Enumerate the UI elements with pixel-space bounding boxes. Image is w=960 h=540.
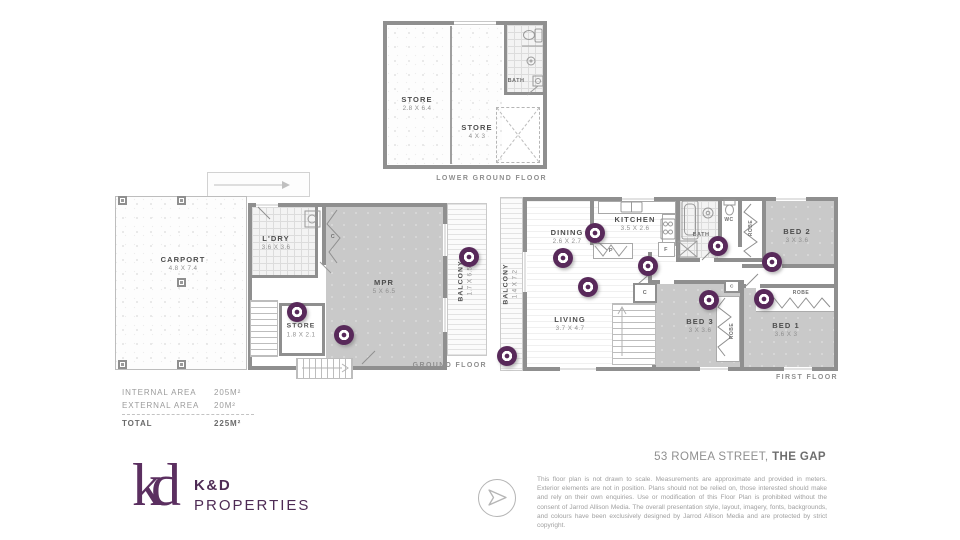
ff-stairs: [612, 303, 656, 365]
gf-carport-label: CARPORT4.8 X 7.4: [161, 255, 206, 273]
ff-bed3-robe: [716, 296, 740, 362]
internal-area-label: INTERNAL AREA: [122, 388, 214, 397]
tour-marker[interactable]: [754, 289, 774, 309]
ff-bath-label: BATH: [693, 232, 710, 238]
ff-bed3-robe-label: ROBE: [729, 323, 735, 339]
gf-stairs: [250, 300, 278, 357]
floorplan-page: STORE2.8 X 6.4 STORE4 X 3 BATH LOWER GRO…: [0, 0, 960, 540]
ff-bed1-robe-label: ROBE: [793, 290, 809, 296]
carport-post: [118, 360, 127, 369]
ff-bed3-label: BED 33 X 3.6: [686, 317, 714, 335]
tour-marker[interactable]: [497, 346, 517, 366]
lg-bath-room: [504, 25, 543, 95]
tour-marker[interactable]: [699, 290, 719, 310]
external-area-value: 20M²: [214, 401, 236, 410]
address-street: 53 ROMEA STREET,: [654, 451, 768, 463]
ff-fridge-label: F: [664, 247, 668, 253]
ff-hall-closet-label: C: [730, 285, 734, 290]
ff-pantry-label: P: [609, 248, 613, 254]
external-area-label: EXTERNAL AREA: [122, 401, 214, 410]
wall: [744, 284, 838, 288]
area-table: INTERNAL AREA 205M² EXTERNAL AREA 20M² T…: [122, 386, 254, 430]
internal-area-row: INTERNAL AREA 205M²: [122, 386, 254, 399]
ff-bed1-label: BED 13.6 X 3: [772, 321, 800, 339]
north-arrow-icon: [478, 479, 516, 517]
brand-name: K&D: [194, 477, 231, 494]
total-area-row: TOTAL 225M²: [122, 417, 254, 430]
ff-wc-label: WC: [724, 217, 733, 223]
total-area-label: TOTAL: [122, 419, 214, 428]
tour-marker[interactable]: [553, 248, 573, 268]
tour-marker[interactable]: [708, 236, 728, 256]
ff-balcony-label: BALCONY1.4 X 7.2: [503, 263, 520, 304]
total-area-value: 225M²: [214, 419, 241, 428]
area-table-divider: [122, 414, 254, 415]
lg-store-2-room: [452, 26, 502, 164]
tour-marker[interactable]: [578, 277, 598, 297]
tour-marker[interactable]: [459, 247, 479, 267]
external-area-row: EXTERNAL AREA 20M²: [122, 399, 254, 412]
disclaimer-text: This floor plan is not drawn to scale. M…: [537, 475, 827, 530]
carport-post: [177, 360, 186, 369]
carport-post: [177, 196, 186, 205]
wall: [450, 26, 452, 164]
wall: [322, 207, 326, 265]
tour-marker[interactable]: [762, 252, 782, 272]
lg-void-outline: [496, 107, 540, 163]
lg-top-window: [454, 21, 496, 25]
carport-post: [177, 278, 186, 287]
gf-closet-label: C: [331, 234, 335, 240]
gf-store-label: STORE1.8 X 2.1: [287, 323, 316, 340]
carport-post: [118, 196, 127, 205]
address-suburb: THE GAP: [768, 451, 826, 463]
property-address: 53 ROMEA STREET, THE GAP: [654, 451, 826, 463]
ground-floor-title: GROUND FLOOR: [413, 362, 487, 369]
gf-entry-stairs: [296, 358, 353, 379]
tour-marker[interactable]: [334, 325, 354, 345]
lower-ground-floor-title: LOWER GROUND FLOOR: [436, 175, 547, 182]
ff-stair-closet-label: C: [643, 290, 647, 296]
ff-living-label: LIVING3.7 X 4.7: [554, 315, 586, 333]
gf-driveway: [207, 172, 310, 197]
internal-area-value: 205M²: [214, 388, 241, 397]
lg-bath-label: BATH: [508, 78, 525, 84]
wall: [676, 201, 680, 262]
kitchen-bench: [598, 201, 676, 214]
lg-store-2-label: STORE4 X 3: [461, 123, 492, 141]
kd-logo-monogram: kd: [132, 455, 170, 515]
lg-store-1-label: STORE2.8 X 6.4: [401, 95, 432, 113]
tour-marker[interactable]: [638, 256, 658, 276]
gf-mpr-label: MPR5 X 6.5: [373, 278, 396, 296]
wall: [740, 280, 744, 371]
wall: [676, 258, 766, 262]
gf-laundry-label: L'DRY3.6 X 3.6: [262, 234, 291, 252]
wall: [738, 201, 742, 247]
ff-bed2-robe-label: ROBE: [748, 220, 754, 236]
first-floor-title: FIRST FLOOR: [776, 374, 838, 381]
brand-name-sub: PROPERTIES: [194, 497, 310, 514]
ff-bed2-label: BED 23 X 3.6: [783, 227, 811, 245]
ff-kitchen-label: KITCHEN3.5 X 2.6: [614, 215, 655, 233]
tour-marker[interactable]: [287, 302, 307, 322]
wall: [742, 264, 838, 268]
tour-marker[interactable]: [585, 223, 605, 243]
ff-dining-label: DINING2.6 X 2.7: [551, 228, 584, 246]
